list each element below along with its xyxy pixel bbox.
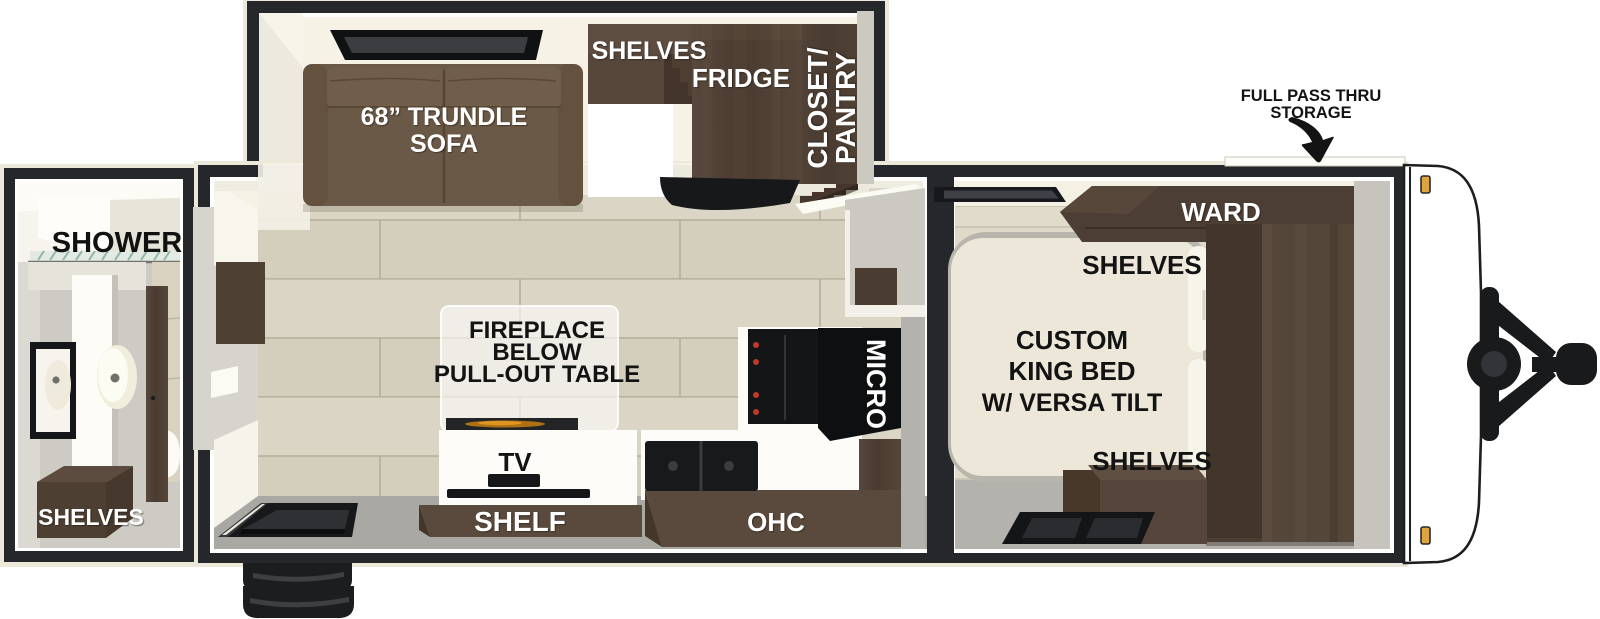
svg-text:SOFA: SOFA	[410, 130, 478, 158]
svg-text:CUSTOM: CUSTOM	[1016, 325, 1128, 355]
svg-text:W/ VERSA TILT: W/ VERSA TILT	[982, 389, 1163, 417]
svg-text:PULL-OUT TABLE: PULL-OUT TABLE	[434, 361, 640, 388]
svg-text:OHC: OHC	[747, 507, 805, 537]
svg-text:KING BED: KING BED	[1008, 356, 1135, 386]
svg-text:SHELVES: SHELVES	[1092, 446, 1211, 476]
svg-text:68” TRUNDLE: 68” TRUNDLE	[361, 103, 528, 131]
svg-text:PANTRY: PANTRY	[830, 52, 861, 164]
svg-text:SHELVES: SHELVES	[38, 504, 144, 530]
svg-text:SHELF: SHELF	[474, 506, 566, 537]
svg-text:FULL PASS THRU: FULL PASS THRU	[1241, 87, 1382, 105]
svg-text:WARD: WARD	[1181, 197, 1260, 227]
svg-text:TV: TV	[498, 447, 532, 477]
svg-text:CLOSET/: CLOSET/	[802, 47, 833, 169]
svg-text:SHOWER: SHOWER	[52, 227, 183, 259]
svg-text:MICRO: MICRO	[861, 339, 891, 429]
svg-text:STORAGE: STORAGE	[1270, 104, 1351, 122]
svg-text:SHELVES: SHELVES	[592, 37, 707, 65]
svg-text:SHELVES: SHELVES	[1082, 250, 1201, 280]
svg-text:FRIDGE: FRIDGE	[692, 63, 790, 93]
